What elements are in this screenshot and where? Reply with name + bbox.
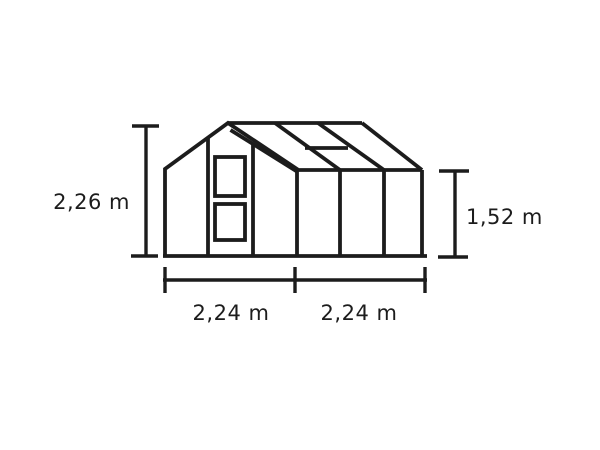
width-dimension-marker: 2,24 m 2,24 m xyxy=(163,267,427,325)
door-lower-glass-panel xyxy=(215,204,245,240)
door-upper-glass-panel xyxy=(215,157,245,196)
side-width-label: 2,24 m xyxy=(321,301,398,325)
greenhouse-drawing xyxy=(163,123,427,256)
gable-width-label: 2,24 m xyxy=(193,301,270,325)
roof-front-edge-line xyxy=(231,130,298,172)
diagram-page: 2,26 m 1,52 m 2,24 m 2,24 m xyxy=(0,0,600,450)
gable-outline xyxy=(165,123,297,256)
ridge-height-dimension-marker: 2,26 m xyxy=(53,126,159,256)
eave-height-label: 1,52 m xyxy=(466,205,543,229)
eave-height-dimension-marker: 1,52 m xyxy=(438,171,543,257)
greenhouse-dimension-diagram: 2,26 m 1,52 m 2,24 m 2,24 m xyxy=(0,0,600,450)
ridge-height-label: 2,26 m xyxy=(53,190,130,214)
